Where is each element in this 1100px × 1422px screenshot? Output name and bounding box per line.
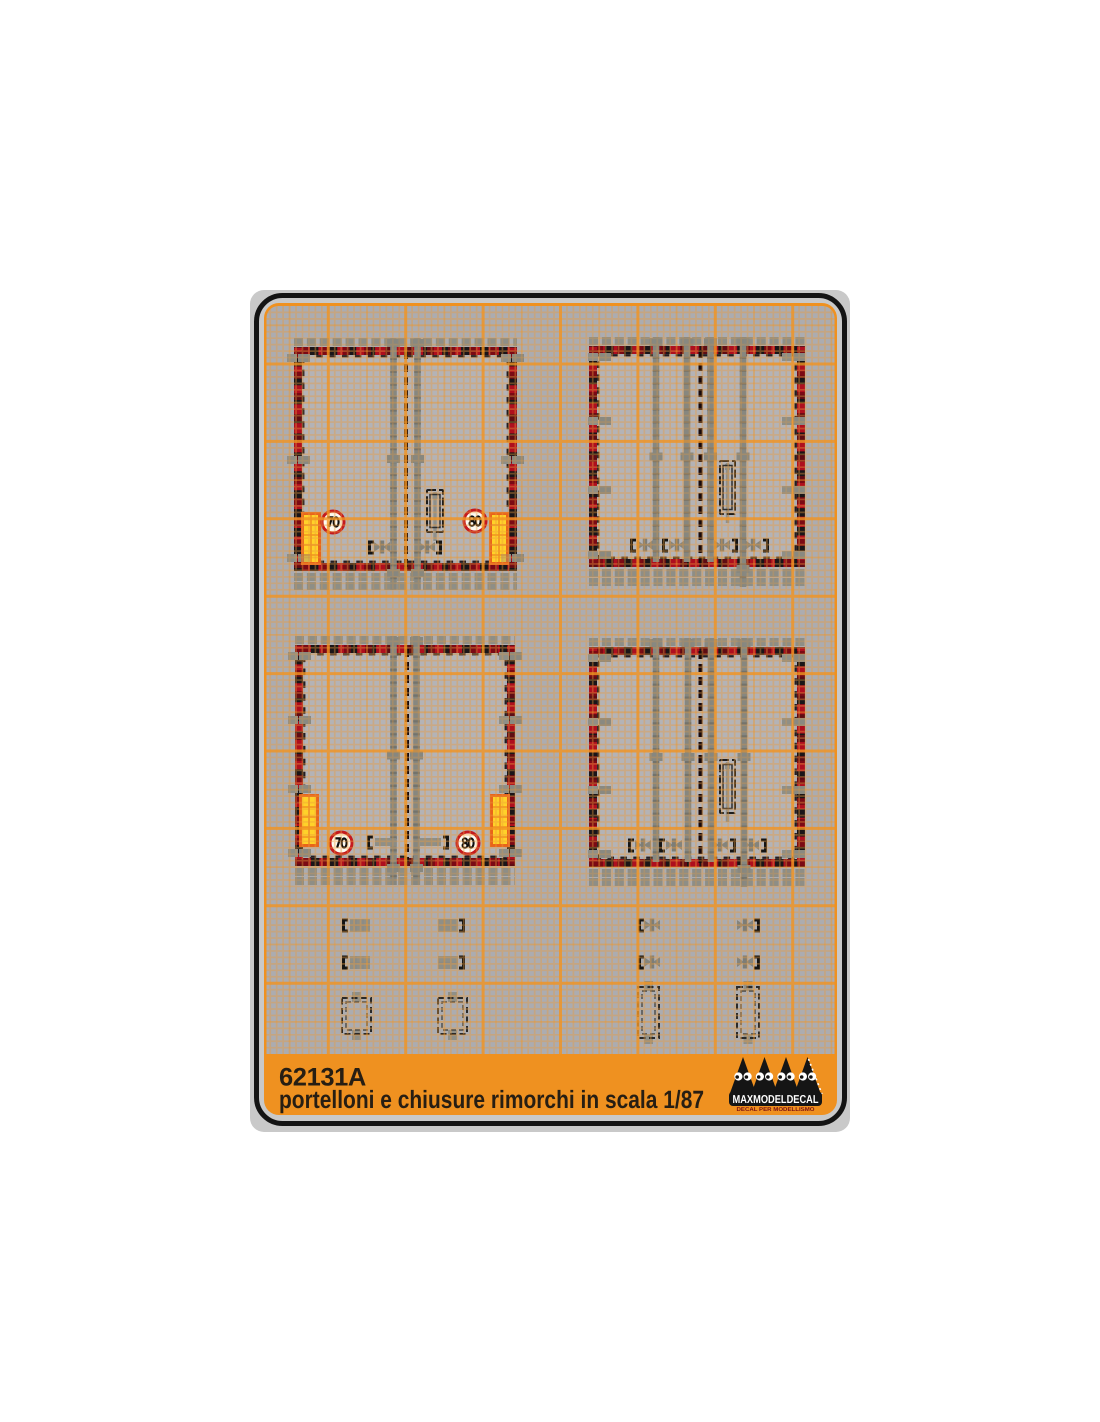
svg-text:MAXMODELDECAL: MAXMODELDECAL — [733, 1094, 819, 1106]
svg-text:portelloni e chiusure rimorchi: portelloni e chiusure rimorchi in scala … — [279, 1086, 704, 1114]
svg-text:DECAL PER MODELLISMO: DECAL PER MODELLISMO — [737, 1107, 816, 1113]
